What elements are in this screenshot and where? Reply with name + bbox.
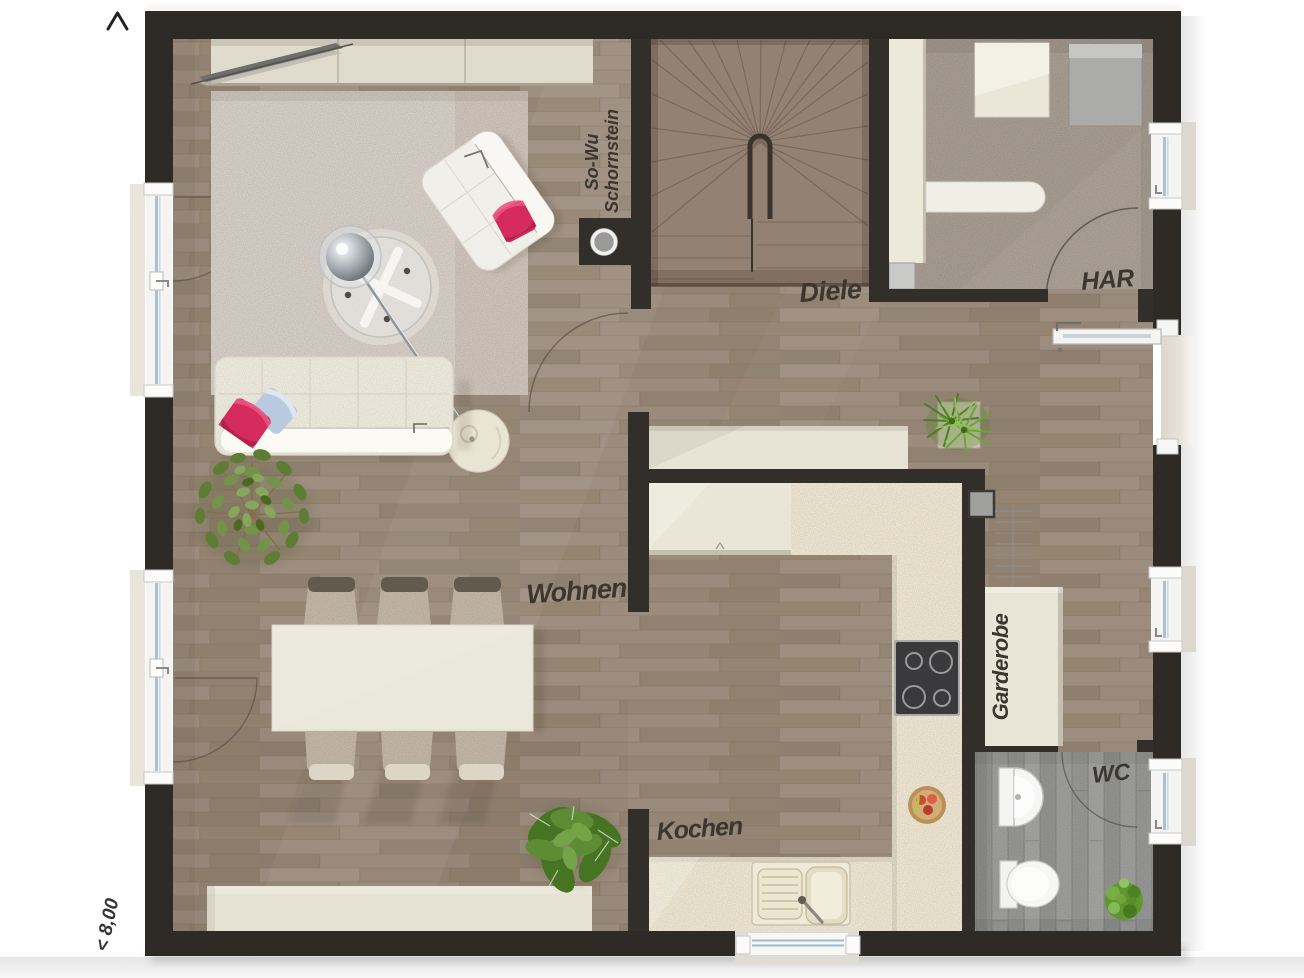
svg-text:Diele: Diele [798,274,862,308]
svg-text:WC: WC [1091,758,1132,788]
svg-text:HAR: HAR [1080,264,1135,296]
svg-text:Schornstein: Schornstein [602,109,622,213]
svg-text:So-Wu: So-Wu [582,134,602,191]
svg-text:Garderobe: Garderobe [988,613,1013,720]
